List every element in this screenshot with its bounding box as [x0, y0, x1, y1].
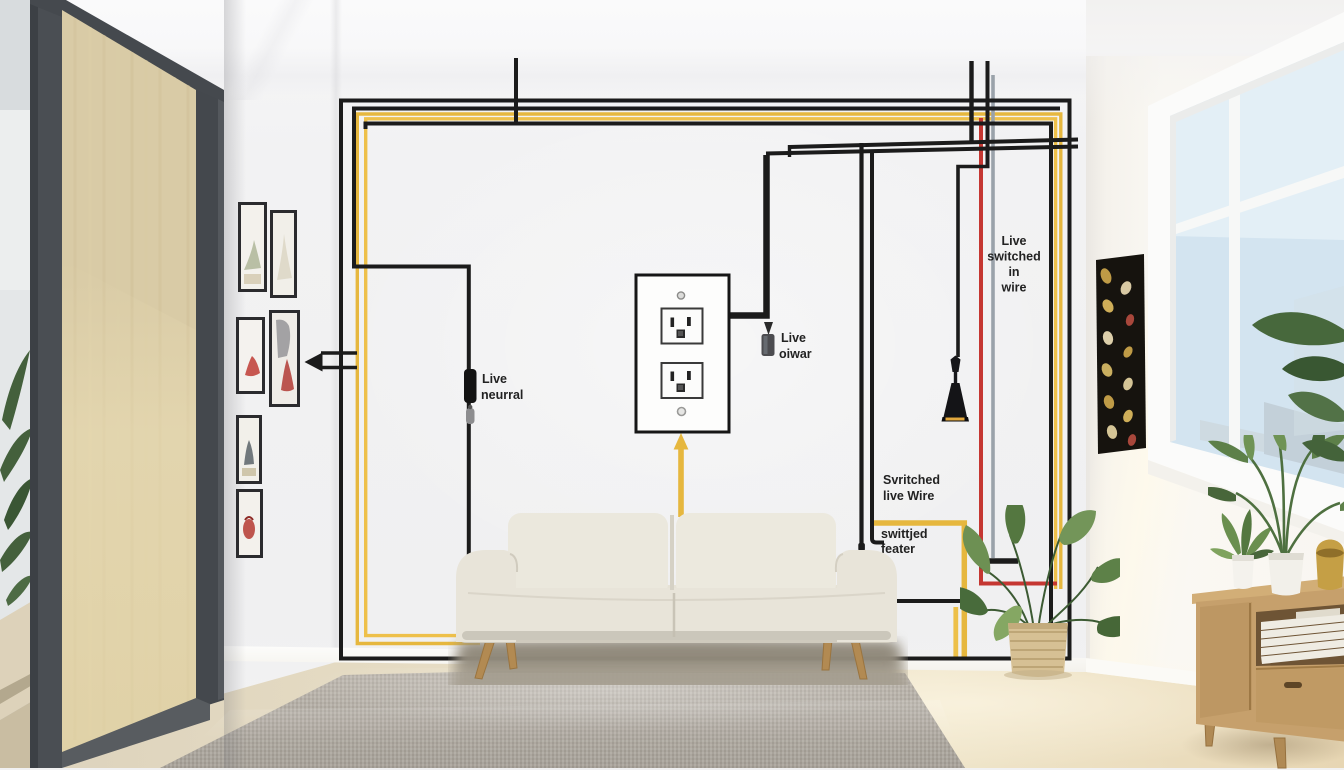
svg-text:wire: wire — [1000, 281, 1026, 295]
svg-text:in: in — [1008, 265, 1019, 279]
svg-text:Svritched: Svritched — [883, 473, 940, 487]
svg-text:Live: Live — [1001, 234, 1026, 248]
svg-text:Live: Live — [781, 331, 806, 345]
svg-text:neurral: neurral — [481, 388, 523, 402]
svg-text:Live: Live — [482, 372, 507, 386]
svg-text:switched: switched — [987, 250, 1041, 264]
svg-text:oiwar: oiwar — [779, 347, 812, 361]
